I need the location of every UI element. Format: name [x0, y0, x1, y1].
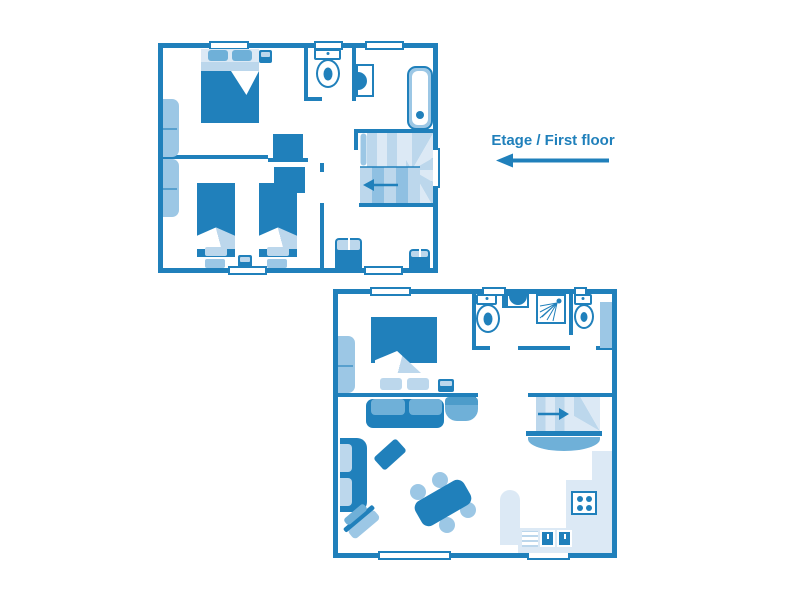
cushion — [340, 444, 352, 472]
shower-icon — [536, 294, 566, 324]
cushion — [409, 399, 442, 415]
cushion — [371, 399, 405, 415]
counter-icon — [528, 437, 600, 451]
wall — [320, 163, 324, 172]
double-bed-icon — [371, 317, 437, 393]
ground-floor-plan — [333, 289, 617, 558]
nightstand-icon — [238, 255, 252, 268]
pillow — [205, 247, 228, 256]
spiral-staircase-icon — [536, 397, 602, 431]
nightstand-icon — [438, 379, 454, 392]
blanket-fold — [197, 225, 235, 249]
closet-icon — [273, 134, 303, 158]
window-icon — [378, 551, 451, 560]
floorplan-canvas: Etage / First floor — [0, 0, 800, 600]
radiator-icon — [600, 302, 612, 348]
pillows — [201, 49, 259, 62]
double-bed-icon — [201, 49, 259, 123]
dresser-icon — [335, 238, 362, 268]
peninsula-icon — [500, 490, 520, 545]
bathtub-icon — [407, 66, 433, 130]
wall — [359, 203, 433, 207]
toilet-icon — [476, 294, 497, 333]
wall — [268, 158, 308, 162]
left-arrow-icon — [496, 152, 610, 168]
pillow — [267, 247, 290, 256]
blanket-fold — [259, 225, 297, 249]
toilet-icon — [574, 294, 592, 329]
floor-label: Etage / First floor — [490, 132, 616, 168]
wall — [526, 431, 602, 436]
wall — [320, 203, 324, 268]
first-floor-plan — [158, 43, 438, 273]
wall — [472, 346, 490, 350]
spiral-staircase-icon — [360, 133, 433, 203]
sink-icon — [540, 530, 555, 547]
single-bed-icon — [259, 183, 297, 257]
wall — [163, 155, 268, 159]
wardrobe-icon — [163, 99, 179, 157]
coffee-table-icon — [373, 438, 407, 471]
drainer-icon — [522, 531, 538, 547]
wall — [354, 129, 358, 150]
pillows — [371, 378, 437, 391]
washbasin-icon — [356, 64, 374, 97]
wardrobe-icon — [338, 336, 355, 393]
wardrobe-icon — [163, 159, 179, 217]
washbasin-icon — [506, 294, 529, 308]
window-icon — [370, 287, 411, 296]
wall — [304, 97, 322, 101]
wall — [569, 294, 573, 335]
window-icon — [364, 266, 403, 275]
wall — [518, 346, 570, 350]
stove-icon — [571, 491, 597, 515]
sofa-icon — [366, 399, 444, 428]
toilet-icon — [314, 49, 341, 88]
single-bed-icon — [197, 183, 235, 257]
stool-icon — [205, 259, 225, 268]
wall — [304, 48, 308, 101]
stool-icon — [267, 259, 287, 268]
nightstand-icon — [259, 50, 272, 63]
cushion — [340, 478, 352, 506]
floor-label-text: Etage / First floor — [491, 132, 614, 149]
side-table-icon — [445, 397, 478, 421]
blanket-fold — [231, 71, 259, 95]
dresser-icon — [409, 249, 430, 268]
sink-icon — [557, 530, 572, 547]
window-icon — [365, 41, 404, 50]
